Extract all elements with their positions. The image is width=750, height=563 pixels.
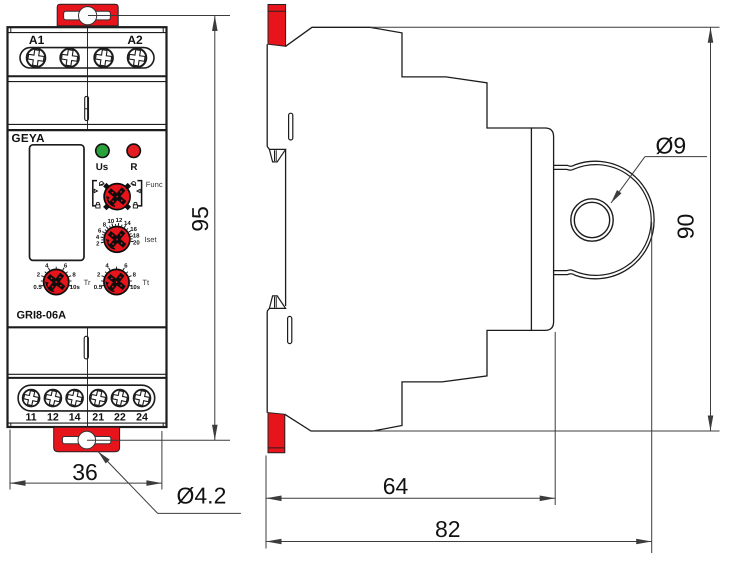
svg-text:Func: Func: [146, 180, 163, 189]
svg-text:Ø9: Ø9: [656, 133, 687, 159]
svg-text:A1: A1: [29, 33, 45, 47]
svg-text:10s: 10s: [130, 284, 141, 291]
svg-text:95: 95: [187, 206, 213, 232]
svg-text:16: 16: [130, 226, 137, 233]
svg-text:18: 18: [133, 233, 140, 240]
svg-text:12: 12: [47, 411, 59, 423]
svg-text:11: 11: [25, 411, 36, 423]
svg-text:20: 20: [133, 239, 140, 246]
svg-text:22: 22: [114, 411, 126, 423]
svg-text:Iset: Iset: [144, 235, 157, 244]
svg-text:21: 21: [92, 411, 104, 423]
svg-text:10s: 10s: [70, 284, 81, 291]
svg-text:Us: Us: [96, 162, 109, 173]
svg-text:Tr: Tr: [84, 278, 91, 287]
svg-text:GEYA: GEYA: [12, 132, 46, 145]
svg-text:GRI8-06A: GRI8-06A: [17, 310, 67, 322]
svg-text:0.5: 0.5: [94, 284, 103, 291]
svg-text:36: 36: [72, 459, 98, 485]
svg-text:A2: A2: [127, 33, 143, 47]
svg-text:64: 64: [383, 473, 409, 499]
svg-text:10: 10: [108, 218, 115, 225]
svg-text:90: 90: [673, 214, 699, 240]
svg-text:14: 14: [124, 220, 131, 227]
svg-text:12: 12: [116, 217, 123, 224]
svg-text:0.5: 0.5: [33, 284, 42, 291]
svg-text:Tt: Tt: [142, 278, 150, 287]
svg-text:24: 24: [136, 411, 148, 423]
svg-text:14: 14: [69, 411, 81, 423]
svg-text:R: R: [130, 162, 137, 173]
svg-text:Ø4.2: Ø4.2: [177, 483, 227, 509]
svg-text:82: 82: [435, 516, 461, 542]
